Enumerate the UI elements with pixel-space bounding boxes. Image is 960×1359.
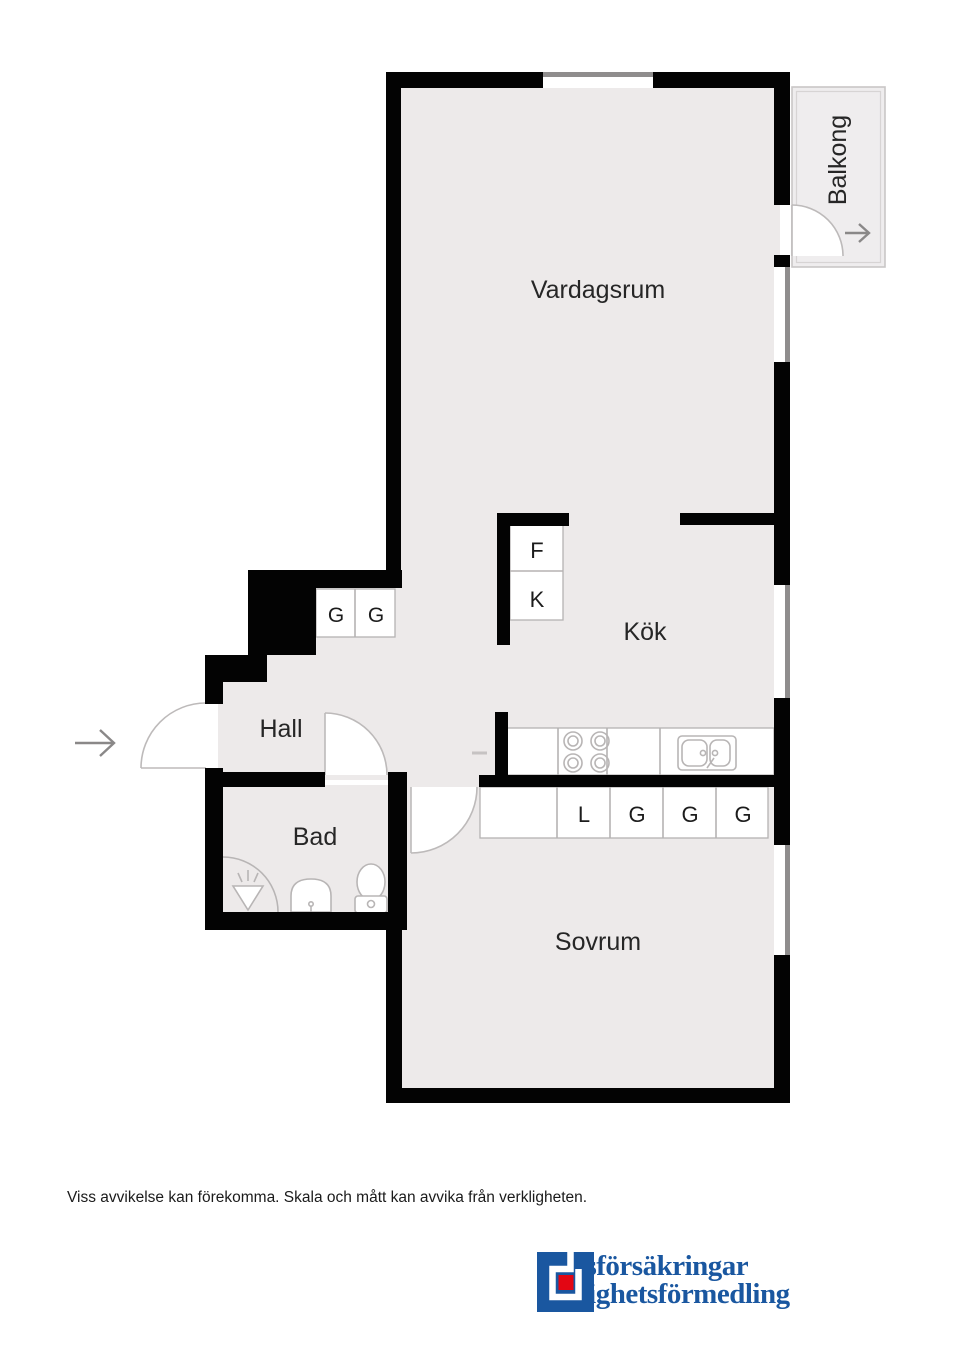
- wall-entry-stub-top: [205, 682, 223, 704]
- wall-left: [386, 72, 401, 588]
- wall-kitchen-bottom: [479, 775, 790, 787]
- fridge-freezer-unit: F K: [510, 523, 563, 620]
- wall-kitchen-right-partition: [680, 513, 775, 525]
- label-bad: Bad: [293, 823, 337, 851]
- window-right-2: [774, 585, 790, 698]
- window-right-1: [774, 267, 790, 362]
- wall-right-3: [774, 698, 790, 845]
- label-sovrum: Sovrum: [555, 928, 641, 956]
- wall-kitchen-left-lower: [495, 712, 508, 778]
- wall-top-left: [386, 72, 543, 88]
- entry-door: [141, 703, 206, 768]
- broker-logo: Länsförsäkringar Fastighetsförmedling: [537, 1252, 790, 1308]
- wall-bedroom-left: [386, 912, 402, 1103]
- floorplan-drawing: L G G G G G F K: [0, 0, 960, 1359]
- fridge-label: F: [530, 538, 543, 563]
- closet-label-g1: G: [628, 802, 645, 827]
- closet-label-l: L: [578, 802, 590, 827]
- wall-hall-bathroom-divider: [205, 772, 325, 787]
- label-balkong: Balkong: [824, 115, 852, 205]
- wall-kitchen-fk-vertical: [497, 513, 510, 645]
- label-kok: Kök: [623, 618, 667, 646]
- wall-bottom: [386, 1088, 790, 1103]
- wall-shaft-block: [248, 588, 316, 655]
- kitchen-counter: [507, 728, 774, 775]
- wall-right-2: [774, 362, 790, 585]
- wall-step-top: [248, 570, 402, 588]
- floorplan-page: L G G G G G F K: [0, 0, 960, 1359]
- window-top: [543, 72, 653, 88]
- wall-right-stub: [774, 255, 790, 267]
- wall-bathroom-bottom: [205, 912, 405, 930]
- wall-right-1: [774, 72, 790, 205]
- window-right-3: [774, 845, 790, 955]
- wall-step-bottom: [205, 655, 267, 682]
- freezer-label: K: [530, 587, 545, 612]
- closet-label-g3: G: [734, 802, 751, 827]
- closet-label-g2: G: [681, 802, 698, 827]
- wall-top-right: [653, 72, 790, 88]
- hall-wardrobes: G G: [316, 589, 395, 637]
- wall-bathroom-right: [388, 772, 407, 930]
- washbasin-icon: [291, 879, 331, 912]
- wardrobe-label-g2: G: [368, 604, 384, 627]
- sink-icon: [678, 736, 736, 770]
- logo-mark-icon: [537, 1252, 594, 1312]
- wall-right-4: [774, 955, 790, 1103]
- wall-bathroom-left: [205, 768, 223, 930]
- label-hall: Hall: [259, 715, 302, 743]
- toilet-icon: [355, 864, 387, 913]
- bedroom-closet-row: L G G G: [480, 787, 768, 838]
- entry-arrow-icon: [75, 730, 114, 756]
- disclaimer-text: Viss avvikelse kan förekomma. Skala och …: [67, 1189, 587, 1207]
- wardrobe-label-g1: G: [328, 604, 344, 627]
- wall-kitchen-fk-top: [497, 513, 569, 526]
- label-vardagsrum: Vardagsrum: [531, 276, 665, 304]
